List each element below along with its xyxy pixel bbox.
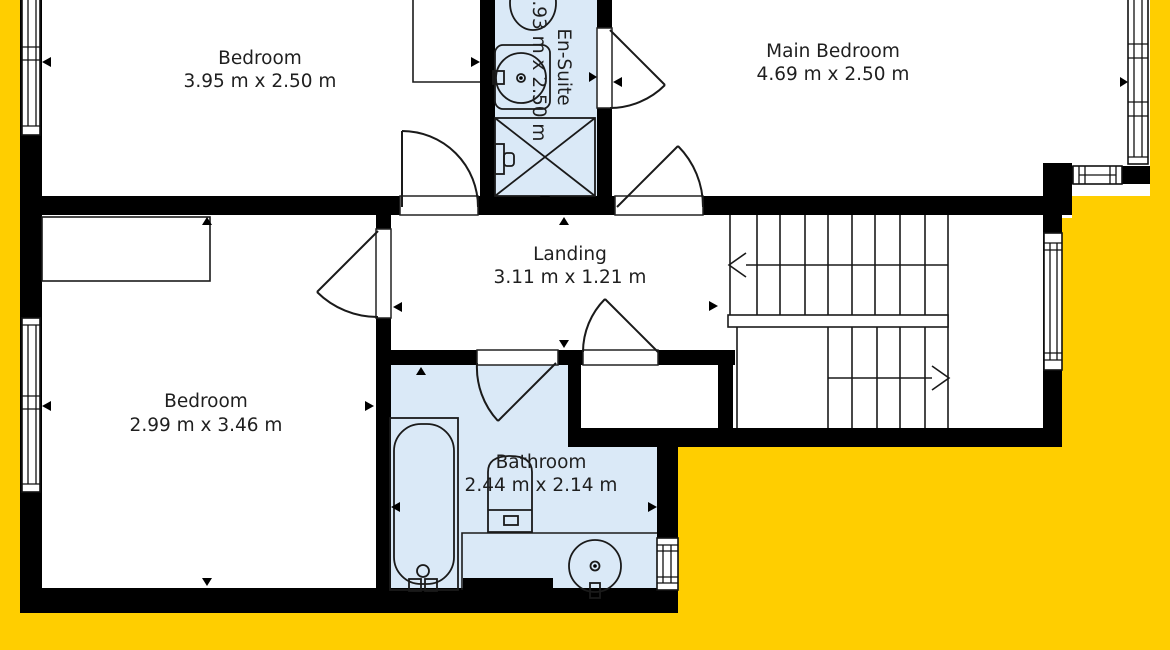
- room-dims-en-suite: 0.93 m x 2.50 m: [528, 0, 549, 141]
- doorway-bedroom-bottom: [376, 229, 391, 318]
- floor-plan: Bedroom 3.95 m x 2.50 m Main Bedroom 4.6…: [0, 0, 1170, 650]
- window-stairwell: [1044, 233, 1062, 370]
- window-bathroom: [657, 538, 678, 590]
- room-dims-landing: 3.11 m x 1.21 m: [494, 267, 647, 288]
- stair-mid-landing: [728, 315, 948, 327]
- wall-ensuite-left: [480, 0, 495, 215]
- room-dims-main-bedroom: 4.69 m x 2.50 m: [757, 64, 910, 85]
- window-main-bedroom-bottom: [1073, 166, 1122, 184]
- doorway-en-suite: [597, 28, 612, 108]
- doorway-bathroom: [477, 350, 558, 365]
- doorway-cupboard: [583, 350, 658, 365]
- window-bedroom-top-left: [22, 0, 40, 135]
- window-main-bedroom-right: [1128, 0, 1148, 164]
- wall-bottom-exterior: [20, 588, 678, 613]
- doorway-main-bedroom: [615, 196, 703, 215]
- doorway-bedroom-top: [400, 196, 478, 215]
- wall-mid-horizontal: [20, 196, 1043, 215]
- window-bedroom-bottom-left: [22, 318, 40, 492]
- room-label-bedroom-top: Bedroom: [218, 48, 302, 69]
- room-label-main-bedroom: Main Bedroom: [766, 41, 900, 62]
- room-dims-bedroom-bottom: 2.99 m x 3.46 m: [130, 415, 283, 436]
- room-label-bedroom-bottom: Bedroom: [164, 391, 248, 412]
- room-dims-bedroom-top: 3.95 m x 2.50 m: [184, 71, 337, 92]
- room-label-bathroom: Bathroom: [496, 452, 587, 473]
- wall-bathroom-bump: [463, 578, 553, 598]
- room-label-en-suite: En-Suite: [553, 28, 574, 105]
- room-dims-bathroom: 2.44 m x 2.14 m: [465, 475, 618, 496]
- room-area-main-bedroom-lower: [595, 0, 1072, 218]
- wall-stair-bottom: [568, 428, 1062, 447]
- room-area-bedroom-top: [20, 0, 495, 218]
- room-label-landing: Landing: [533, 244, 607, 265]
